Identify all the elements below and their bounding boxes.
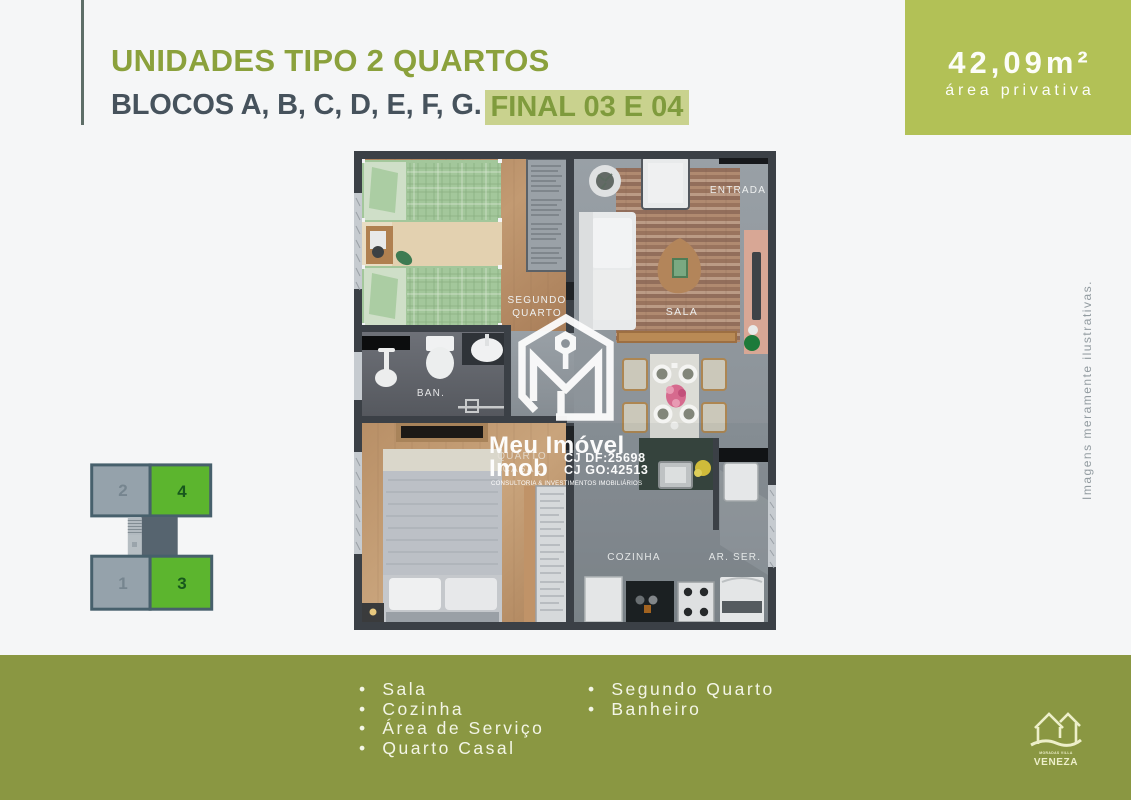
svg-text:BAN.: BAN. xyxy=(417,388,445,399)
svg-text:2: 2 xyxy=(118,481,127,500)
svg-text:3: 3 xyxy=(177,574,186,593)
svg-text:MORADAS VILLA: MORADAS VILLA xyxy=(1039,751,1073,755)
svg-text:ENTRADA: ENTRADA xyxy=(710,185,766,196)
svg-text:4: 4 xyxy=(177,482,187,501)
svg-text:SALA: SALA xyxy=(666,306,698,318)
svg-text:CJ GO:42513: CJ GO:42513 xyxy=(564,463,648,477)
svg-text:Imob: Imob xyxy=(489,455,548,482)
svg-text:VENEZA: VENEZA xyxy=(1034,757,1078,768)
svg-text:CONSULTORIA & INVESTIMENTOS IM: CONSULTORIA & INVESTIMENTOS IMOBILIÁRIOS xyxy=(491,480,642,487)
svg-text:SEGUNDO: SEGUNDO xyxy=(508,295,567,306)
svg-text:1: 1 xyxy=(118,574,127,593)
svg-text:QUARTO: QUARTO xyxy=(512,308,562,319)
